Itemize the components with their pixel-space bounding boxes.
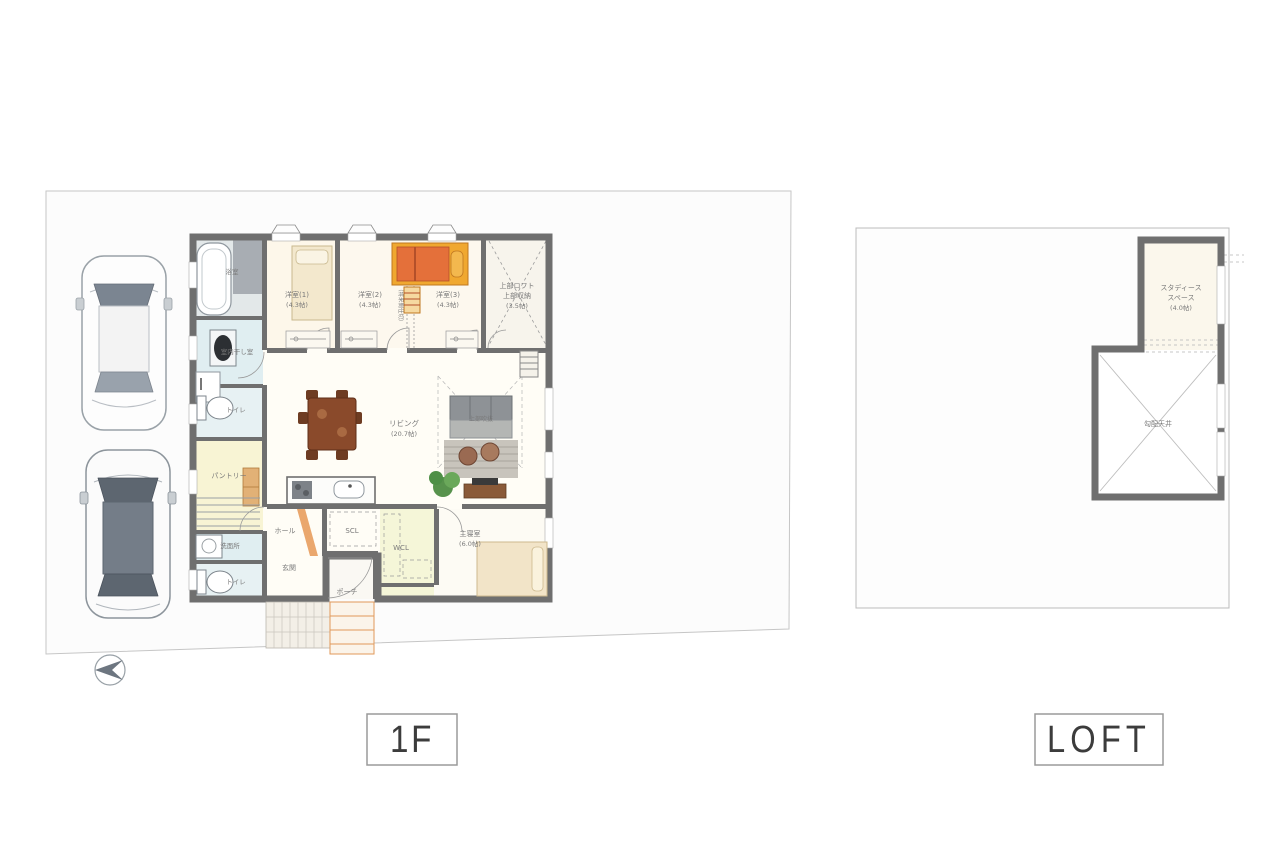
building-1f: 浴室 室内干し室 トイレ パントリー 洗面所 トイレ 洋室(1) (4.3帖) … (189, 225, 553, 654)
porch-label: ポーチ (337, 588, 358, 596)
partition-note: （将来間仕切） (397, 286, 405, 325)
hall-label: ホール (275, 527, 296, 535)
car-1-icon (76, 256, 172, 430)
floorplan-sheet: 浴室 室内干し室 トイレ パントリー 洗面所 トイレ 洋室(1) (4.3帖) … (0, 0, 1280, 853)
upper-storage-size: (3.5帖) (506, 301, 528, 310)
washroom-label: 洗面所 (220, 541, 240, 550)
floorplan-svg: 浴室 室内干し室 トイレ パントリー 洗面所 トイレ 洋室(1) (4.3帖) … (0, 0, 1280, 853)
bedroom3-label: 洋室(3) (436, 290, 460, 299)
bedroom1-label: 洋室(1) (285, 290, 309, 299)
bath-label: 浴室 (226, 267, 240, 276)
toilet1-label: トイレ (226, 406, 246, 414)
caption-1f: 1F (390, 719, 434, 761)
wcl-label: WCL (393, 544, 409, 552)
master-label: 主寝室 (460, 529, 481, 538)
north-arrow-icon (95, 655, 125, 685)
upper-storage-label2: 上部収納 (503, 291, 531, 300)
bed-icon-master (477, 542, 547, 596)
drying-label: 室内干し室 (221, 347, 254, 356)
bathtub-icon (197, 243, 231, 315)
scl-label: SCL (345, 527, 358, 535)
sloped-ceiling-label: 勾配天井 (1144, 419, 1172, 428)
bedroom3-size: (4.3帖) (437, 300, 459, 309)
upper-storage-label1: 上部ロフト (500, 281, 535, 290)
caption-loft: LOFT (1047, 719, 1151, 761)
toilet2-label: トイレ (226, 578, 246, 586)
void-note: 上部吹抜 (469, 415, 493, 423)
living-label: リビング (389, 418, 419, 428)
study-label-2: スペース (1167, 294, 1194, 302)
porch-tiles (266, 602, 374, 654)
kitchen-counter-icon (287, 477, 375, 504)
loft-ladder-icon (520, 351, 538, 377)
washbasin-icon (196, 535, 222, 558)
bedroom2-label: 洋室(2) (358, 290, 382, 299)
entrance-label: 玄関 (282, 563, 296, 572)
caption-loft-box: LOFT (1035, 714, 1163, 765)
bedroom2-size: (4.3帖) (359, 300, 381, 309)
caption-1f-box: 1F (367, 714, 457, 765)
bedroom1-size: (4.3帖) (286, 300, 308, 309)
rug-icon (444, 440, 518, 478)
study-label-1: スタディース (1160, 283, 1201, 292)
master-size: (6.0帖) (459, 539, 481, 548)
living-size: (20.7帖) (391, 429, 417, 438)
pantry-label: パントリー (211, 472, 246, 480)
car-2-icon (80, 450, 176, 618)
study-size: (4.0帖) (1170, 303, 1192, 312)
